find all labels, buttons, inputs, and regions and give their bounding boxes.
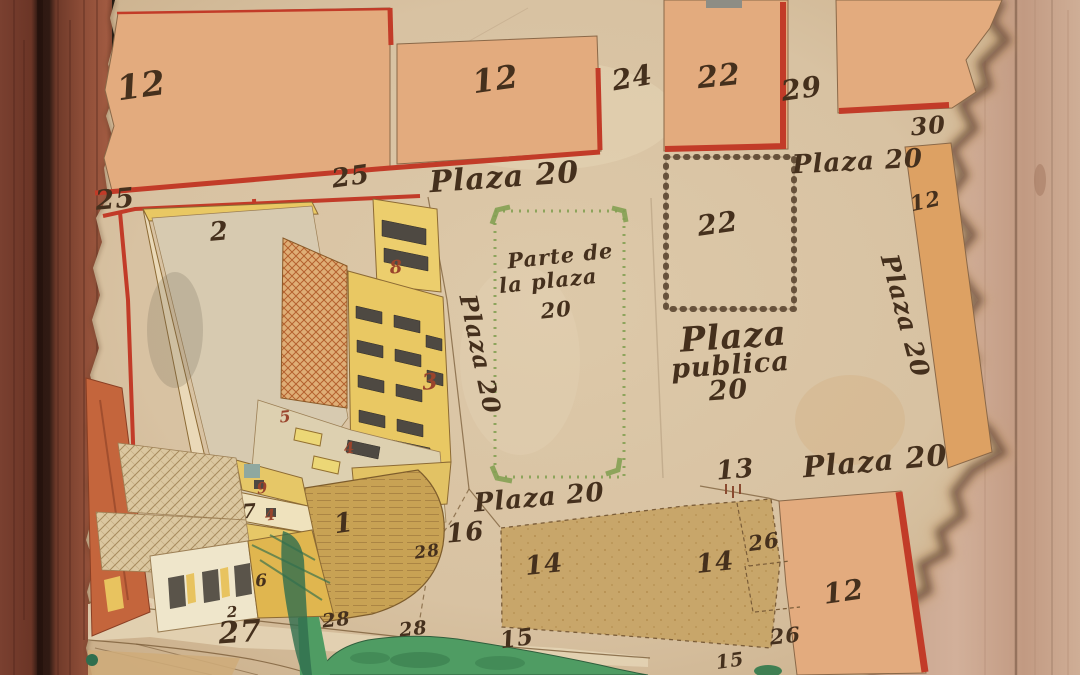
facade-upper bbox=[373, 199, 441, 292]
label-street-29: 29 bbox=[778, 69, 824, 108]
label-building-4a: 4 bbox=[343, 438, 356, 457]
label-lot-12-top-left: 12 bbox=[114, 63, 168, 109]
label-lot-16: 16 bbox=[445, 516, 486, 549]
block-22-cap bbox=[706, 0, 742, 8]
label-lot-14-right: 14 bbox=[695, 546, 736, 580]
label-lot-26-upper: 26 bbox=[746, 527, 781, 556]
label-building-8: 8 bbox=[388, 256, 405, 278]
label-lot-25-mid: 25 bbox=[329, 160, 372, 195]
map-canvas: 1225251224Plaza 20222930Plaza 2012Plaza … bbox=[0, 0, 1080, 675]
label-building-9: 9 bbox=[256, 478, 269, 497]
label-lot-27: 27 bbox=[216, 614, 263, 652]
label-lot-22-top: 22 bbox=[694, 57, 742, 96]
label-lot-13: 13 bbox=[715, 453, 756, 486]
label-lot-12-bottom-right: 12 bbox=[821, 572, 866, 610]
framed-parchment-map: 1225251224Plaza 20222930Plaza 2012Plaza … bbox=[0, 0, 1080, 675]
label-lot-28-b: 28 bbox=[320, 608, 352, 633]
label-building-6: 6 bbox=[255, 571, 269, 592]
label-lot-15-left: 15 bbox=[498, 623, 535, 654]
label-lot-15-right: 15 bbox=[715, 648, 746, 674]
label-lot-25-left: 25 bbox=[93, 182, 136, 216]
label-parte-plaza-line3: 20 bbox=[538, 295, 573, 323]
label-lot-14-left: 14 bbox=[524, 548, 565, 582]
label-plaza-publica-line3: 20 bbox=[707, 374, 750, 408]
label-lot-12-top-mid: 12 bbox=[470, 57, 521, 101]
label-lot-28-c: 28 bbox=[397, 617, 429, 642]
block-12-top-mid bbox=[397, 36, 601, 164]
label-building-3: 3 bbox=[421, 368, 440, 396]
label-building-2-small: 2 bbox=[225, 603, 239, 622]
label-building-5: 5 bbox=[278, 406, 292, 426]
label-building-4b: 4 bbox=[264, 505, 277, 524]
green-bit-corner bbox=[86, 654, 98, 666]
label-building-7: 7 bbox=[241, 499, 258, 524]
label-lot-30: 30 bbox=[909, 110, 947, 142]
label-lot-22-chain-square: 22 bbox=[694, 204, 740, 243]
label-lot-28-a: 28 bbox=[412, 540, 441, 564]
label-lot-26-lower: 26 bbox=[767, 621, 802, 649]
brick-wall bbox=[281, 238, 347, 408]
label-lot-2-yard: 2 bbox=[207, 216, 230, 248]
